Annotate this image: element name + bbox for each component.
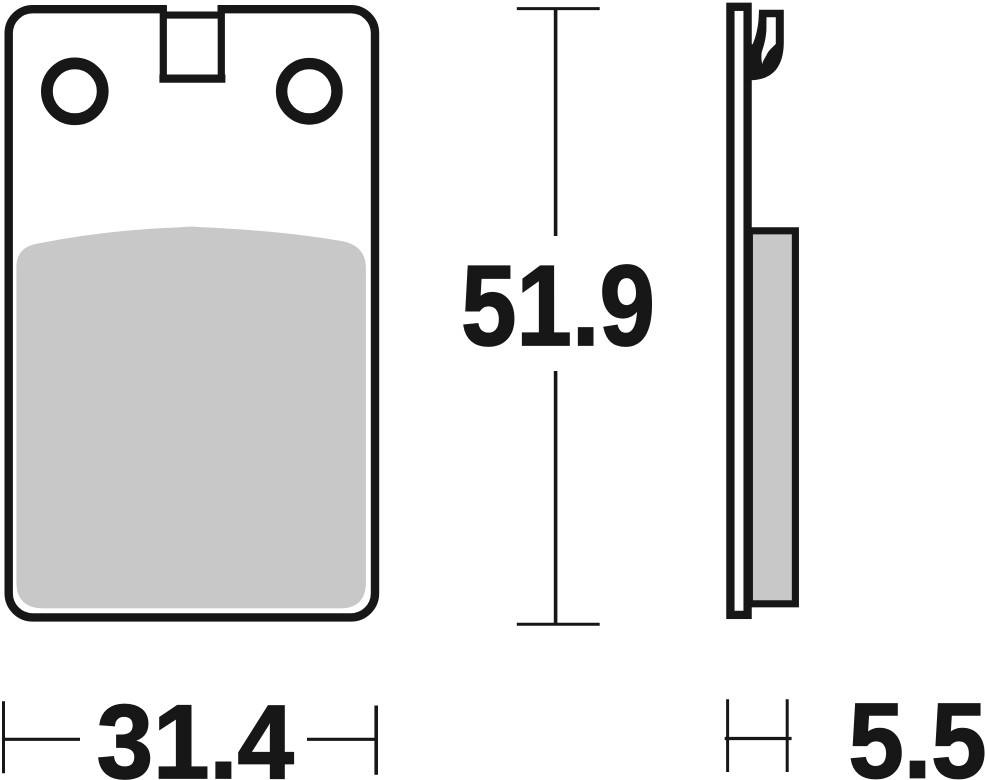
svg-text:51.9: 51.9 [461, 242, 655, 370]
svg-text:31.4: 31.4 [97, 684, 294, 780]
svg-text:5.5: 5.5 [849, 681, 987, 780]
